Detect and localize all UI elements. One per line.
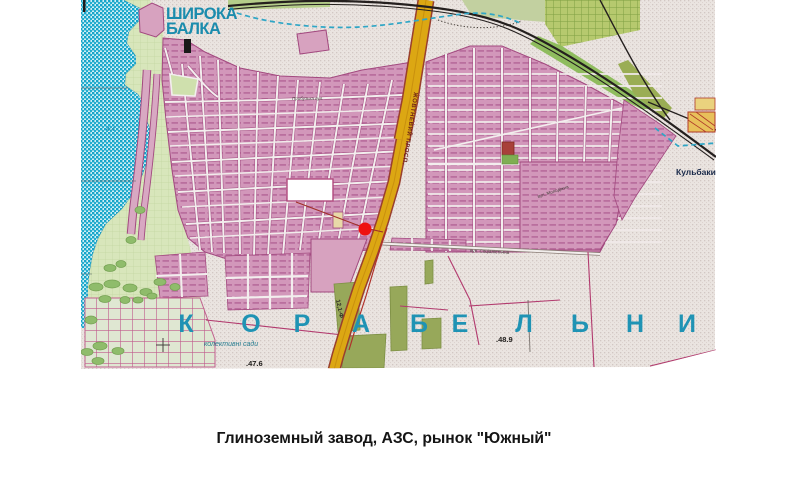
svg-text:колективні сади: колективні сади [204,340,258,348]
svg-text:4.4: 4.4 [106,126,115,133]
svg-text:К: К [178,310,194,338]
svg-text:Р: Р [294,310,311,338]
svg-text:БАЛКА: БАЛКА [166,20,221,38]
svg-text:Е: Е [452,310,469,338]
svg-text:.48.9: .48.9 [496,335,513,344]
svg-text:Ь: Ь [571,310,589,338]
svg-text:Л: Л [515,310,533,338]
svg-text:О: О [241,310,260,338]
svg-text:Н: Н [626,310,644,338]
svg-text:Кульбаки: Кульбаки [676,167,716,177]
svg-text:И: И [678,310,696,338]
svg-text:Б: Б [410,310,428,338]
svg-text:Прибузька вул.: Прибузька вул. [292,96,323,101]
svg-text:А: А [352,310,370,338]
svg-text:Глиноземный завод, АЗС, рынок: Глиноземный завод, АЗС, рынок "Южный" [217,430,552,447]
svg-text:.47.6: .47.6 [246,359,263,368]
